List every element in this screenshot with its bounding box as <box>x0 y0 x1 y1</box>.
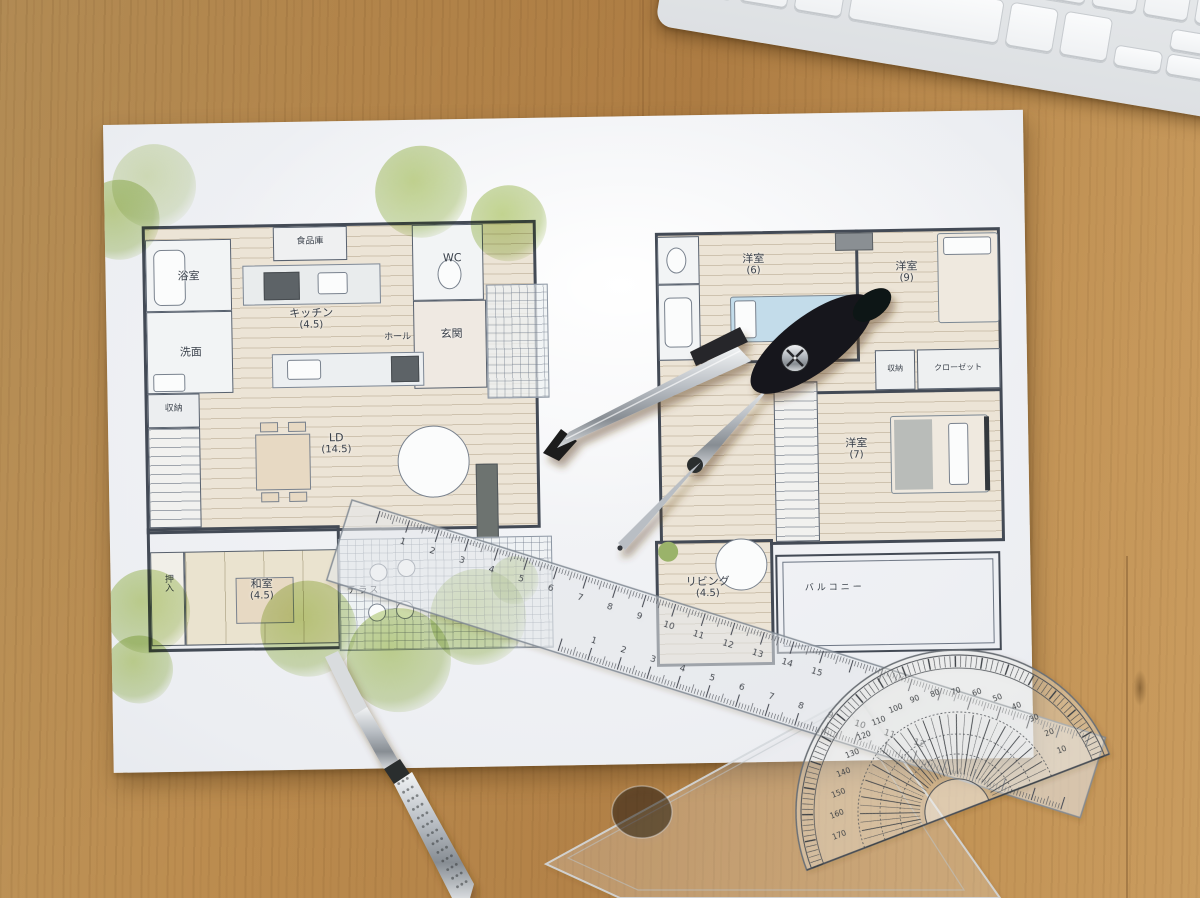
keyboard-key <box>1194 0 1200 32</box>
label-storage-1f: 収納 <box>165 404 183 415</box>
label-ld: LD(14.5) <box>321 431 351 457</box>
keyboard-key <box>1040 0 1092 7</box>
dining-chair <box>260 422 278 432</box>
stove <box>263 272 299 301</box>
label-bedroom7: 洋室(7) <box>845 436 867 462</box>
keyboard-key <box>847 0 1005 46</box>
kitchen-sink-top <box>317 272 347 294</box>
label-bath: 浴室 <box>177 269 199 283</box>
label-balcony: バルコニー <box>805 582 865 594</box>
label-bedroom6: 洋室(6) <box>742 252 764 278</box>
tv-board <box>476 464 499 539</box>
label-entrance: 玄関 <box>440 327 462 341</box>
dining-table <box>255 434 311 491</box>
dishwasher <box>391 356 419 382</box>
pillow <box>948 423 969 485</box>
keyboard-key <box>739 0 794 10</box>
dresser <box>835 232 873 251</box>
keyboard-key <box>793 0 848 20</box>
wash-basin <box>153 374 185 393</box>
keyboard-key <box>1142 0 1194 24</box>
pillow <box>734 300 757 338</box>
dining-chair <box>261 492 279 502</box>
label-terrace: テラス <box>347 585 380 596</box>
floor-plan-paper: 浴室 洗面 食品庫 キッチン(4.5) WC ホール 玄関 収納 LD(14.5… <box>103 110 1034 773</box>
wood-plank-seam <box>1126 556 1128 898</box>
tree <box>104 635 173 704</box>
keyboard-key <box>1004 2 1059 55</box>
island-sink <box>287 359 321 380</box>
balcony-rail <box>782 558 994 646</box>
label-kitchen: キッチン(4.5) <box>289 306 333 332</box>
label-washroom: 洗面 <box>180 345 202 359</box>
label-second-living: リビング(4.5) <box>686 575 730 601</box>
label-storage-2f: 収納 <box>887 364 903 374</box>
label-hall: ホール <box>384 332 411 343</box>
keyboard-key <box>673 0 740 1</box>
label-closet-2f: クローゼット <box>934 362 982 372</box>
dining-chair <box>289 492 307 502</box>
label-pantry: 食品庫 <box>296 236 323 247</box>
entrance-porch <box>486 284 550 399</box>
keyboard-key <box>1091 0 1143 15</box>
keyboard-key <box>1058 11 1113 64</box>
keyboard-key <box>1112 44 1163 75</box>
wash-basin-2f <box>664 297 693 347</box>
stairs-1f <box>148 427 202 528</box>
wood-plank-seam <box>642 0 644 118</box>
duvet <box>894 419 933 490</box>
desk-scene: 浴室 洗面 食品庫 キッチン(4.5) WC ホール 玄関 収納 LD(14.5… <box>0 0 1200 898</box>
pillow <box>943 236 991 255</box>
dining-chair <box>288 422 306 432</box>
arrow-keys <box>1112 20 1200 93</box>
balcony <box>775 551 1002 654</box>
tree <box>111 143 196 228</box>
tree <box>260 580 358 678</box>
keyboard-key <box>1165 53 1200 84</box>
stairs-2f <box>773 381 820 542</box>
label-wc-1f: WC <box>443 251 462 264</box>
label-bedroom9: 洋室(9) <box>895 260 917 286</box>
toilet-2f <box>666 247 686 273</box>
